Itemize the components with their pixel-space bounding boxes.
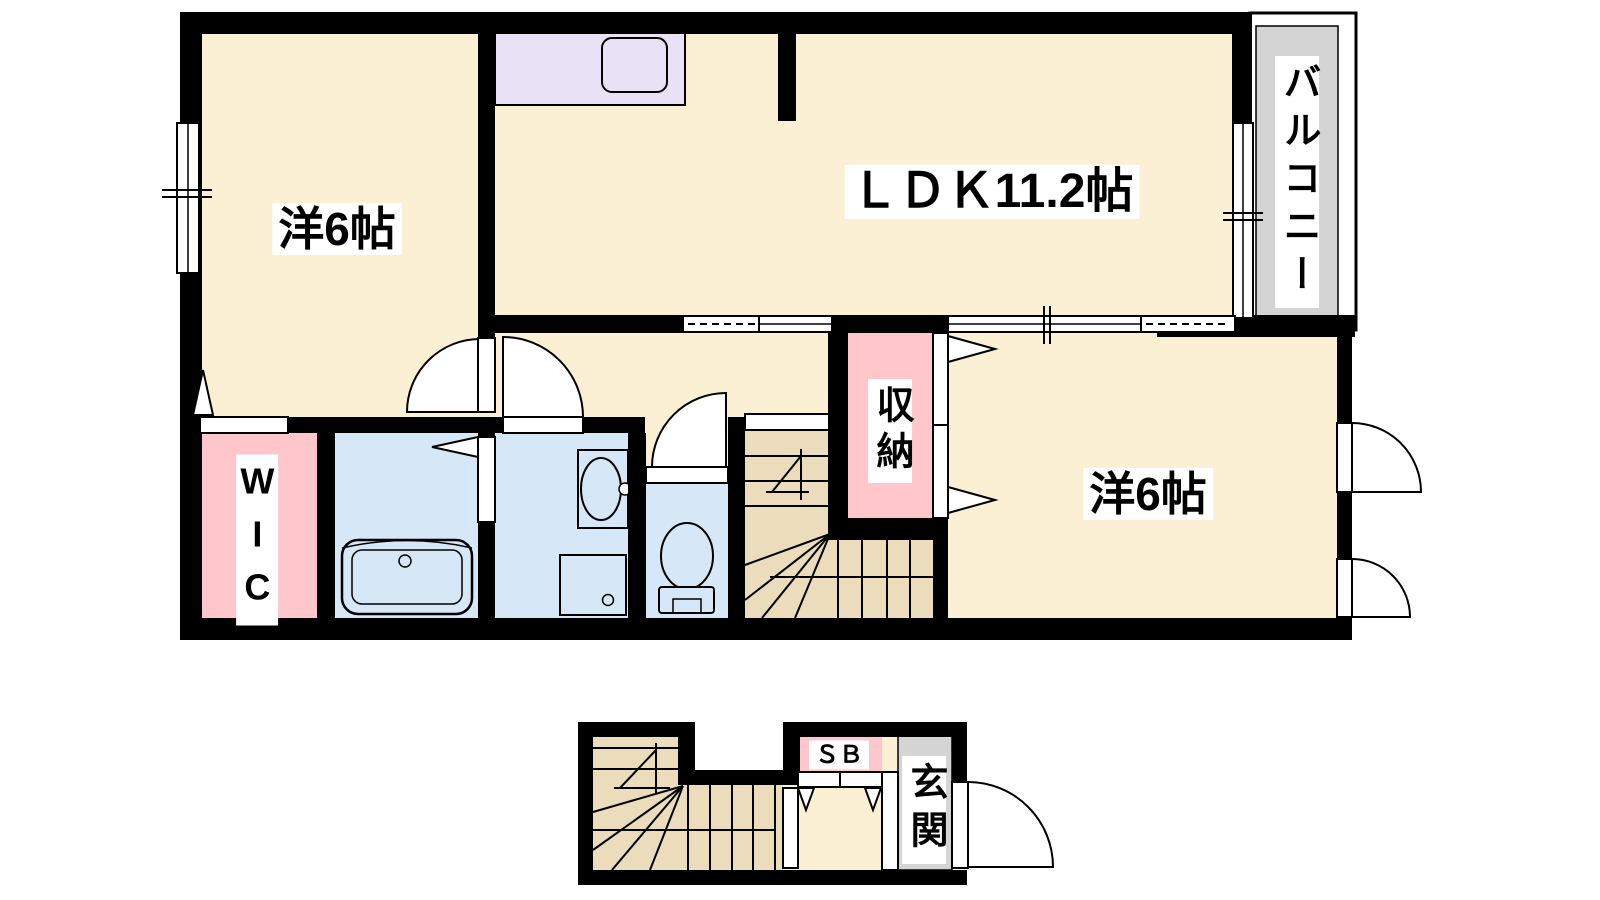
label-bedroom-right: 洋6帖 — [1083, 468, 1213, 520]
sliding-door-ldk-hall — [683, 316, 832, 332]
label-bedroom-left: 洋6帖 — [272, 203, 402, 255]
door-bedroom-right-upper — [1352, 423, 1421, 492]
floorplan-canvas: 洋6帖 ＬＤＫ11.2帖 バルコニー 収納 洋6帖 WIC ＳＢ 玄関 — [0, 0, 1600, 900]
wic-sliding-door — [200, 417, 288, 433]
floorplan-drawing — [0, 0, 1600, 900]
storage-door-lower — [933, 425, 948, 518]
label-wic: WIC — [236, 455, 278, 626]
door-bathroom — [478, 437, 495, 522]
label-entrance: 玄関 — [902, 756, 946, 864]
kitchen-sink — [602, 38, 667, 92]
bathroom-floor — [335, 433, 478, 618]
door-bedroom-right-lower — [1352, 559, 1410, 617]
shoe-box-door-left — [798, 772, 840, 787]
label-storage: 収納 — [868, 379, 912, 483]
stair-hall-opening — [783, 788, 798, 868]
entrance-step — [882, 772, 898, 870]
second-floor-plan — [162, 12, 1421, 640]
label-balcony: バルコニー — [1275, 56, 1319, 308]
shoe-box-door-right — [840, 772, 882, 787]
label-ldk: ＬＤＫ11.2帖 — [845, 165, 1140, 219]
entrance-door — [968, 782, 1053, 867]
kitchen-counter — [495, 28, 685, 105]
label-shoe-box: ＳＢ — [809, 740, 869, 769]
storage-door-upper — [933, 333, 948, 425]
toilet — [659, 523, 714, 613]
